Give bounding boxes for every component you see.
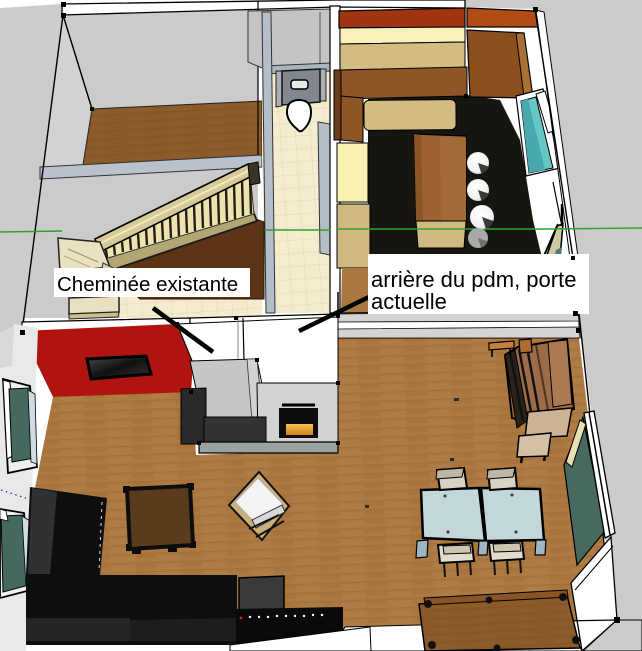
svg-text:actuelle: actuelle: [371, 289, 447, 314]
svg-text:Cheminée existante: Cheminée existante: [57, 273, 238, 296]
